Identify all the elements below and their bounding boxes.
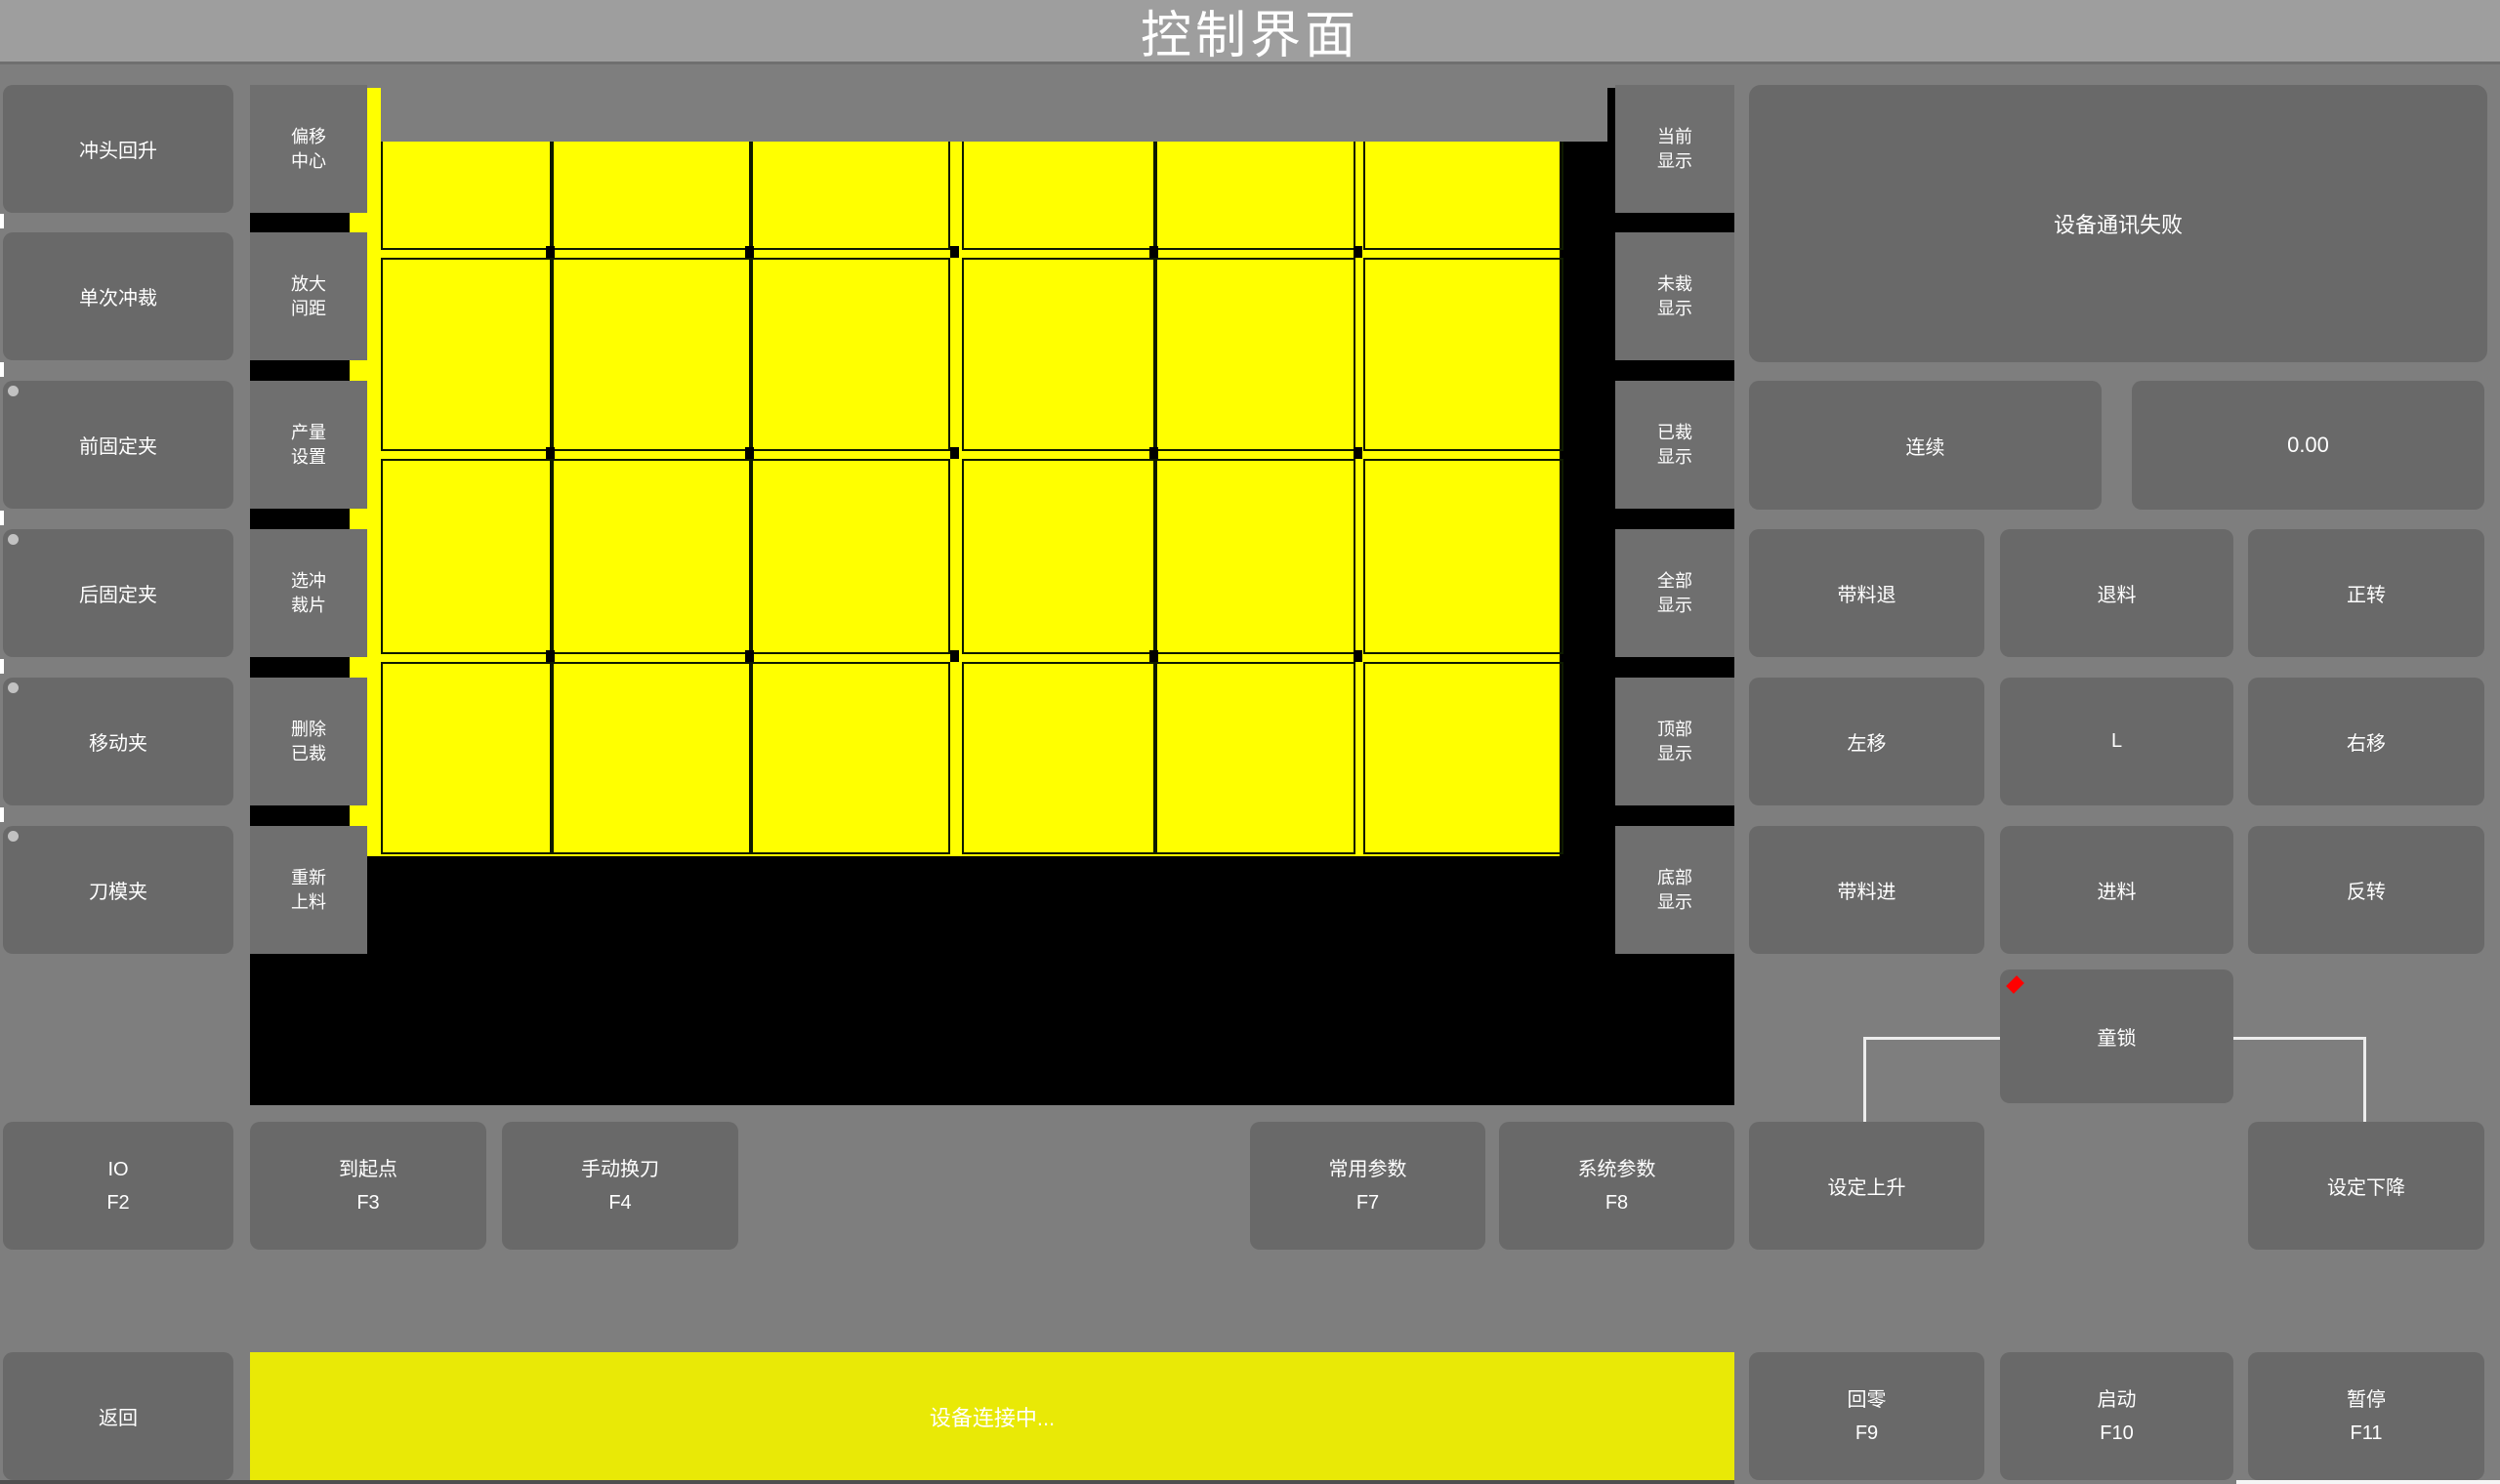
show-bottom-button[interactable]: 底部 显示 <box>1615 826 1734 954</box>
sheet-piece[interactable] <box>381 662 552 854</box>
pause-f11-button[interactable]: 暂停 F11 <box>2248 1352 2484 1480</box>
fkey-label: F4 <box>608 1186 631 1219</box>
button-label: 显示 <box>1657 297 1692 320</box>
plot-top-mask <box>381 88 1607 142</box>
show-uncut-button[interactable]: 未裁 显示 <box>1615 232 1734 360</box>
unload-button[interactable]: 退料 <box>2000 529 2233 657</box>
grid-notch <box>1354 246 1362 258</box>
grid-notch <box>1149 650 1158 662</box>
offset-center-button[interactable]: 偏移 中心 <box>250 85 367 213</box>
single-punch-button[interactable]: 单次冲裁 <box>3 232 233 360</box>
alarm-indicator-icon <box>2006 975 2024 994</box>
grid-notch <box>546 447 555 459</box>
button-label: 间距 <box>291 297 326 320</box>
button-label: 连续 <box>1906 432 1945 460</box>
delete-cut-button[interactable]: 删除 已裁 <box>250 678 367 805</box>
button-label: 进料 <box>2098 876 2137 904</box>
grid-notch <box>546 246 555 258</box>
button-label: 反转 <box>2347 876 2386 904</box>
yield-settings-button[interactable]: 产量 设置 <box>250 381 367 509</box>
move-left-button[interactable]: 左移 <box>1749 678 1984 805</box>
left-edge-tick <box>0 659 4 674</box>
sheet-piece[interactable] <box>1363 258 1563 451</box>
fkey-label: F2 <box>106 1186 129 1219</box>
button-label: 已裁 <box>1657 421 1692 444</box>
button-label: 设置 <box>291 445 326 469</box>
button-label: 返回 <box>99 1402 138 1430</box>
sheet-piece[interactable] <box>751 662 950 854</box>
button-label: 显示 <box>1657 594 1692 617</box>
connector-line <box>2363 1037 2366 1123</box>
bottom-edge-strip <box>2236 1480 2500 1484</box>
manual-toolchange-f4-button[interactable]: 手动换刀 F4 <box>502 1122 738 1250</box>
button-label: 后固定夹 <box>79 579 157 607</box>
grid-notch <box>950 447 959 459</box>
sheet-piece[interactable] <box>552 258 751 451</box>
grid-notch <box>546 650 555 662</box>
value-text: 0.00 <box>2287 433 2329 458</box>
sheet-piece[interactable] <box>751 258 950 451</box>
set-rise-button[interactable]: 设定上升 <box>1749 1122 1984 1250</box>
zoom-spacing-button[interactable]: 放大 间距 <box>250 232 367 360</box>
feed-button[interactable]: 进料 <box>2000 826 2233 954</box>
button-label: 已裁 <box>291 742 326 765</box>
button-label: 设定上升 <box>1828 1172 1906 1200</box>
state-indicator-dot <box>8 386 19 396</box>
button-label: 显示 <box>1657 742 1692 765</box>
show-cut-button[interactable]: 已裁 显示 <box>1615 381 1734 509</box>
punch-raise-button[interactable]: 冲头回升 <box>3 85 233 213</box>
status-bar: 设备连接中... <box>250 1352 1734 1480</box>
grid-notch <box>950 650 959 662</box>
rear-clamp-button[interactable]: 后固定夹 <box>3 529 233 657</box>
page-title: 控制界面 <box>1141 0 1359 67</box>
button-label: 暂停 <box>2347 1383 2386 1417</box>
home-f9-button[interactable]: 回零 F9 <box>1749 1352 1984 1480</box>
sheet-piece[interactable] <box>962 459 1155 654</box>
left-edge-tick <box>0 511 4 525</box>
button-label: 回零 <box>1848 1383 1887 1417</box>
button-label: L <box>2111 730 2122 753</box>
button-label: 删除 <box>291 718 326 741</box>
sheet-piece[interactable] <box>381 459 552 654</box>
button-label: 系统参数 <box>1578 1153 1656 1186</box>
sheet-piece[interactable] <box>1155 662 1355 854</box>
button-label: 带料进 <box>1838 876 1896 904</box>
bottom-edge-strip <box>0 1480 1734 1484</box>
connector-line <box>1863 1037 2000 1040</box>
grid-notch <box>745 650 754 662</box>
grid-notch <box>745 447 754 459</box>
button-label: IO <box>107 1153 128 1186</box>
sheet-piece[interactable] <box>751 459 950 654</box>
button-label: 移动夹 <box>89 727 147 756</box>
left-edge-tick <box>0 214 4 228</box>
system-params-f8-button[interactable]: 系统参数 F8 <box>1499 1122 1734 1250</box>
select-piece-button[interactable]: 选冲 裁片 <box>250 529 367 657</box>
io-f2-button[interactable]: IO F2 <box>3 1122 233 1250</box>
button-label: 裁片 <box>291 594 326 617</box>
fkey-label: F10 <box>2100 1417 2133 1450</box>
sheet-piece[interactable] <box>1363 459 1563 654</box>
start-f10-button[interactable]: 启动 F10 <box>2000 1352 2233 1480</box>
button-label: 左移 <box>1848 727 1887 756</box>
back-button[interactable]: 返回 <box>3 1352 233 1480</box>
button-label: 带料退 <box>1838 579 1896 607</box>
grid-notch <box>950 246 959 258</box>
button-label: 产量 <box>291 421 326 444</box>
value-display: 0.00 <box>2132 381 2484 510</box>
reload-material-button[interactable]: 重新 上料 <box>250 826 367 954</box>
show-current-button[interactable]: 当前 显示 <box>1615 85 1734 213</box>
button-label: 显示 <box>1657 890 1692 914</box>
state-indicator-dot <box>8 831 19 842</box>
title-bar: 控制界面 <box>0 0 2500 64</box>
button-label: 显示 <box>1657 445 1692 469</box>
show-all-button[interactable]: 全部 显示 <box>1615 529 1734 657</box>
reverse-rotate-button[interactable]: 反转 <box>2248 826 2484 954</box>
grid-notch <box>1149 447 1158 459</box>
grid-notch <box>1354 447 1362 459</box>
move-right-button[interactable]: 右移 <box>2248 678 2484 805</box>
sheet-piece[interactable] <box>962 258 1155 451</box>
button-label: 中心 <box>291 149 326 173</box>
status-text: 设备连接中... <box>930 1401 1055 1432</box>
sheet-piece[interactable] <box>1155 459 1355 654</box>
sheet-piece[interactable] <box>552 459 751 654</box>
button-label: 显示 <box>1657 149 1692 173</box>
state-indicator-dot <box>8 682 19 693</box>
button-label: 正转 <box>2347 579 2386 607</box>
grid-notch <box>745 246 754 258</box>
connector-line <box>2233 1037 2366 1040</box>
button-label: 启动 <box>2098 1383 2137 1417</box>
left-edge-tick <box>0 362 4 377</box>
button-label: 刀模夹 <box>89 876 147 904</box>
button-label: 前固定夹 <box>79 431 157 459</box>
button-label: 顶部 <box>1657 718 1692 741</box>
button-label: 放大 <box>291 272 326 296</box>
device-message-box: 设备通讯失败 <box>1749 85 2487 362</box>
left-edge-tick <box>0 807 4 822</box>
button-label: 手动换刀 <box>581 1153 659 1186</box>
layout-plot-area <box>250 88 1734 1105</box>
child-lock-button[interactable]: 童锁 <box>2000 969 2233 1103</box>
button-label: 退料 <box>2098 579 2137 607</box>
button-label: 底部 <box>1657 866 1692 889</box>
sheet-piece[interactable] <box>552 662 751 854</box>
go-origin-f3-button[interactable]: 到起点 F3 <box>250 1122 486 1250</box>
sheet-piece[interactable] <box>1155 258 1355 451</box>
die-clamp-button[interactable]: 刀模夹 <box>3 826 233 954</box>
sheet-piece[interactable] <box>962 662 1155 854</box>
sheet-piece[interactable] <box>381 258 552 451</box>
grid-notch <box>1354 650 1362 662</box>
button-label: 右移 <box>2347 727 2386 756</box>
button-label: 上料 <box>291 890 326 914</box>
fkey-label: F11 <box>2351 1417 2383 1450</box>
device-message-text: 设备通讯失败 <box>2054 208 2183 239</box>
front-clamp-button[interactable]: 前固定夹 <box>3 381 233 509</box>
button-label: 单次冲裁 <box>79 282 157 310</box>
set-lower-button[interactable]: 设定下降 <box>2248 1122 2484 1250</box>
moving-clamp-button[interactable]: 移动夹 <box>3 678 233 805</box>
button-label: 重新 <box>291 866 326 889</box>
button-label: 选冲 <box>291 569 326 593</box>
material-sheet <box>350 88 1560 856</box>
state-indicator-dot <box>8 534 19 545</box>
sheet-piece[interactable] <box>1363 662 1563 854</box>
connector-line <box>1863 1037 1866 1123</box>
show-top-button[interactable]: 顶部 显示 <box>1615 678 1734 805</box>
continuous-mode-button[interactable]: 连续 <box>1749 381 2102 510</box>
common-params-f7-button[interactable]: 常用参数 F7 <box>1250 1122 1485 1250</box>
button-label: 全部 <box>1657 569 1692 593</box>
button-label: 当前 <box>1657 125 1692 148</box>
strip-retreat-button[interactable]: 带料退 <box>1749 529 1984 657</box>
button-label: 冲头回升 <box>79 135 157 163</box>
fkey-label: F8 <box>1605 1186 1628 1219</box>
button-label: 设定下降 <box>2327 1172 2405 1200</box>
button-label: 未裁 <box>1657 272 1692 296</box>
grid-notch <box>1149 246 1158 258</box>
button-label: 童锁 <box>2098 1022 2137 1051</box>
fkey-label: F3 <box>356 1186 379 1219</box>
strip-advance-button[interactable]: 带料进 <box>1749 826 1984 954</box>
forward-rotate-button[interactable]: 正转 <box>2248 529 2484 657</box>
l-button[interactable]: L <box>2000 678 2233 805</box>
button-label: 常用参数 <box>1329 1153 1407 1186</box>
fkey-label: F7 <box>1356 1186 1379 1219</box>
button-label: 到起点 <box>339 1153 397 1186</box>
fkey-label: F9 <box>1855 1417 1878 1450</box>
button-label: 偏移 <box>291 125 326 148</box>
